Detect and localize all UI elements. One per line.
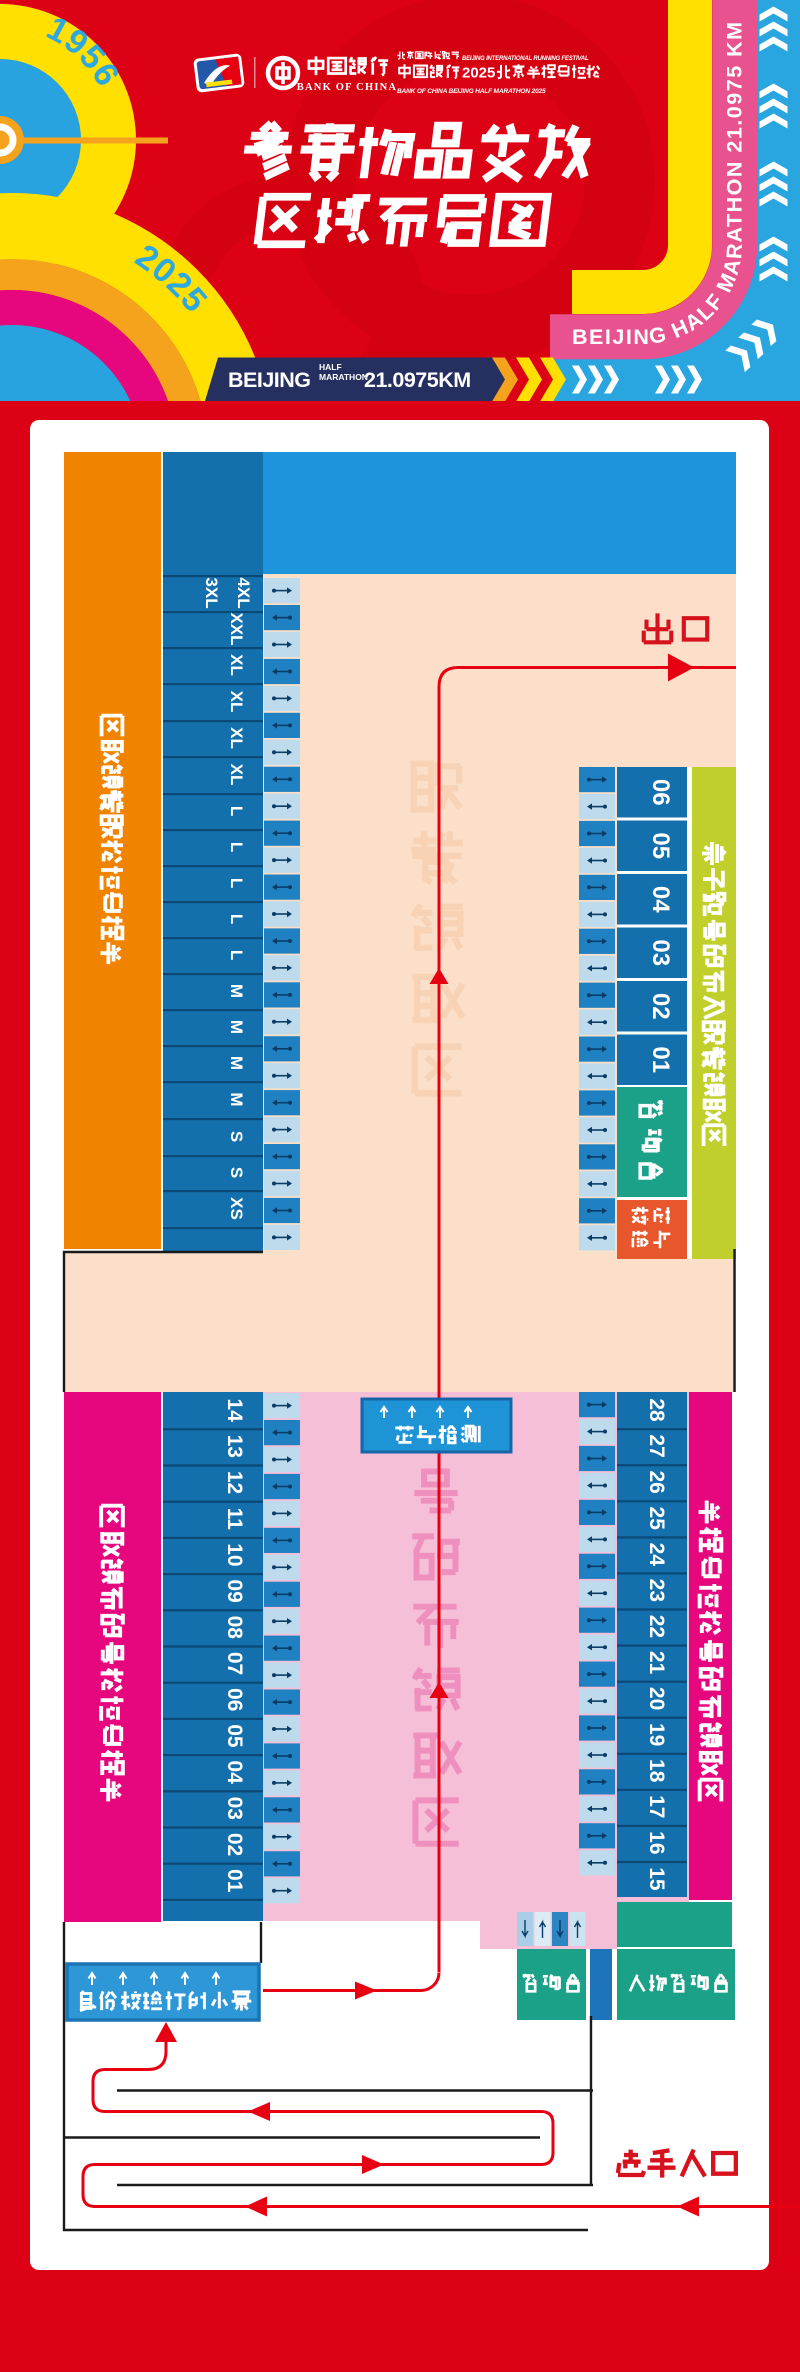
svg-text:L: L xyxy=(227,950,246,960)
svg-text:22: 22 xyxy=(645,1615,668,1638)
svg-text:27: 27 xyxy=(645,1434,668,1457)
svg-text:10: 10 xyxy=(223,1543,246,1566)
svg-text:HALF: HALF xyxy=(319,362,342,372)
svg-text:XL: XL xyxy=(227,654,246,676)
svg-text:L: L xyxy=(227,878,246,888)
svg-text:01: 01 xyxy=(647,1046,674,1073)
svg-text:XL: XL xyxy=(227,764,246,786)
svg-text:BEIJING INTERNATIONAL RUNNING: BEIJING INTERNATIONAL RUNNING FESTIVAL xyxy=(462,56,589,62)
svg-text:08: 08 xyxy=(223,1616,246,1640)
svg-text:2025: 2025 xyxy=(462,65,495,82)
svg-text:23: 23 xyxy=(645,1579,668,1602)
svg-text:03: 03 xyxy=(223,1797,246,1820)
svg-text:20: 20 xyxy=(645,1687,668,1710)
svg-text:L: L xyxy=(227,842,246,852)
svg-text:01: 01 xyxy=(223,1869,246,1893)
svg-text:04: 04 xyxy=(223,1760,246,1784)
svg-text:05: 05 xyxy=(223,1724,246,1748)
svg-text:BANK OF CHINA BEIJING HALF MAR: BANK OF CHINA BEIJING HALF MARATHON 2025 xyxy=(397,88,546,95)
svg-text:14: 14 xyxy=(223,1398,246,1422)
svg-text:11: 11 xyxy=(223,1508,246,1531)
svg-text:13: 13 xyxy=(223,1435,246,1458)
svg-text:05: 05 xyxy=(647,832,674,859)
svg-text:S: S xyxy=(227,1167,246,1178)
svg-text:28: 28 xyxy=(645,1398,668,1422)
svg-text:17: 17 xyxy=(645,1795,668,1818)
svg-text:15: 15 xyxy=(645,1867,668,1891)
svg-text:06: 06 xyxy=(223,1688,246,1711)
svg-text:06: 06 xyxy=(647,779,674,806)
svg-text:07: 07 xyxy=(223,1652,246,1675)
svg-text:M: M xyxy=(227,1020,246,1034)
svg-text:21: 21 xyxy=(645,1651,668,1675)
svg-text:4XL: 4XL xyxy=(234,577,253,608)
svg-text:MARATHON: MARATHON xyxy=(319,372,368,382)
svg-text:12: 12 xyxy=(223,1471,246,1494)
svg-text:18: 18 xyxy=(645,1759,668,1783)
svg-text:XL: XL xyxy=(227,691,246,713)
svg-text:16: 16 xyxy=(645,1831,668,1854)
svg-text:09: 09 xyxy=(223,1579,246,1602)
svg-text:L: L xyxy=(227,914,246,924)
svg-text:04: 04 xyxy=(647,886,674,913)
svg-text:L: L xyxy=(227,806,246,816)
svg-text:XXL: XXL xyxy=(227,612,246,645)
svg-text:19: 19 xyxy=(645,1723,668,1746)
svg-text:S: S xyxy=(227,1131,246,1142)
svg-text:26: 26 xyxy=(645,1470,668,1493)
svg-text:25: 25 xyxy=(645,1507,668,1531)
svg-text:XL: XL xyxy=(227,727,246,749)
svg-text:M: M xyxy=(227,1056,246,1070)
svg-text:BEIJING: BEIJING xyxy=(228,368,311,392)
svg-text:21.0975KM: 21.0975KM xyxy=(364,368,471,392)
svg-text:XS: XS xyxy=(227,1197,246,1220)
svg-text:BANK OF CHINA: BANK OF CHINA xyxy=(297,82,397,93)
svg-text:02: 02 xyxy=(223,1833,246,1856)
svg-text:24: 24 xyxy=(645,1543,668,1567)
svg-text:02: 02 xyxy=(647,993,674,1020)
svg-text:3XL: 3XL xyxy=(202,577,221,608)
svg-text:03: 03 xyxy=(647,939,674,966)
svg-text:M: M xyxy=(227,1092,246,1106)
svg-text:M: M xyxy=(227,984,246,998)
